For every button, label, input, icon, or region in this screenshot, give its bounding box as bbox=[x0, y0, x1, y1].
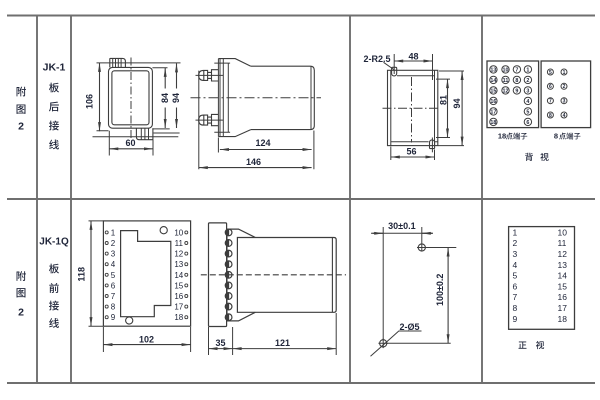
svg-text:124: 124 bbox=[255, 138, 270, 148]
svg-text:15: 15 bbox=[558, 281, 568, 291]
svg-text:7: 7 bbox=[513, 292, 518, 302]
svg-text:5: 5 bbox=[549, 70, 552, 76]
svg-text:9: 9 bbox=[515, 88, 518, 94]
svg-text:10: 10 bbox=[174, 228, 183, 237]
svg-text:10: 10 bbox=[558, 227, 568, 237]
svg-text:2: 2 bbox=[513, 238, 518, 248]
svg-text:1: 1 bbox=[563, 70, 566, 76]
svg-text:4: 4 bbox=[563, 113, 566, 119]
svg-text:2: 2 bbox=[18, 307, 24, 319]
svg-text:15: 15 bbox=[174, 281, 183, 290]
svg-text:5: 5 bbox=[526, 109, 529, 115]
svg-text:16: 16 bbox=[558, 292, 568, 302]
svg-text:18: 18 bbox=[558, 314, 568, 324]
svg-text:56: 56 bbox=[406, 147, 416, 157]
svg-text:10: 10 bbox=[503, 67, 509, 73]
svg-text:2: 2 bbox=[111, 239, 116, 248]
svg-text:13: 13 bbox=[558, 260, 568, 270]
svg-text:35: 35 bbox=[215, 338, 225, 348]
svg-text:9: 9 bbox=[111, 313, 116, 322]
svg-text:6: 6 bbox=[111, 281, 116, 290]
svg-text:2: 2 bbox=[563, 84, 566, 90]
svg-text:8: 8 bbox=[554, 132, 558, 141]
svg-text:121: 121 bbox=[275, 338, 290, 348]
svg-text:JK-1: JK-1 bbox=[43, 62, 66, 74]
svg-text:1: 1 bbox=[111, 228, 116, 237]
svg-text:12: 12 bbox=[174, 250, 183, 259]
svg-text:94: 94 bbox=[452, 98, 462, 108]
svg-text:100±0.2: 100±0.2 bbox=[435, 274, 445, 306]
svg-text:84: 84 bbox=[160, 93, 170, 103]
svg-text:8: 8 bbox=[549, 113, 552, 119]
svg-text:2: 2 bbox=[526, 78, 529, 84]
svg-text:17: 17 bbox=[490, 109, 496, 115]
svg-text:30±0.1: 30±0.1 bbox=[388, 221, 415, 231]
svg-text:7: 7 bbox=[549, 99, 552, 105]
svg-text:146: 146 bbox=[246, 157, 261, 167]
svg-text:48: 48 bbox=[408, 51, 418, 61]
svg-text:JK-1Q: JK-1Q bbox=[39, 237, 69, 248]
svg-text:14: 14 bbox=[490, 78, 496, 84]
svg-text:11: 11 bbox=[558, 238, 567, 248]
svg-text:14: 14 bbox=[174, 271, 183, 280]
svg-text:60: 60 bbox=[125, 138, 135, 148]
svg-text:11: 11 bbox=[175, 239, 184, 248]
svg-text:8: 8 bbox=[515, 78, 518, 84]
svg-text:1: 1 bbox=[526, 67, 529, 73]
svg-text:3: 3 bbox=[111, 250, 116, 259]
svg-text:18: 18 bbox=[490, 120, 496, 126]
svg-text:6: 6 bbox=[513, 281, 518, 291]
svg-text:18: 18 bbox=[498, 132, 506, 141]
svg-text:106: 106 bbox=[85, 94, 95, 109]
svg-text:16: 16 bbox=[490, 99, 496, 105]
svg-text:5: 5 bbox=[513, 271, 518, 281]
svg-text:8: 8 bbox=[111, 303, 116, 312]
svg-text:5: 5 bbox=[111, 271, 116, 280]
svg-text:3: 3 bbox=[526, 88, 529, 94]
svg-text:13: 13 bbox=[174, 260, 183, 269]
svg-text:118: 118 bbox=[76, 267, 86, 282]
svg-text:16: 16 bbox=[174, 292, 183, 301]
svg-text:18: 18 bbox=[174, 313, 183, 322]
svg-text:11: 11 bbox=[503, 78, 509, 84]
svg-text:8: 8 bbox=[513, 303, 518, 313]
svg-text:4: 4 bbox=[111, 260, 116, 269]
svg-text:1: 1 bbox=[513, 227, 518, 237]
svg-text:3: 3 bbox=[513, 249, 518, 259]
svg-text:17: 17 bbox=[558, 303, 568, 313]
svg-text:4: 4 bbox=[526, 99, 529, 105]
svg-text:12: 12 bbox=[503, 88, 509, 94]
svg-text:3: 3 bbox=[563, 99, 566, 105]
svg-text:14: 14 bbox=[558, 271, 568, 281]
svg-text:15: 15 bbox=[490, 88, 496, 94]
svg-text:7: 7 bbox=[111, 292, 116, 301]
svg-text:12: 12 bbox=[558, 249, 568, 259]
svg-text:2: 2 bbox=[18, 121, 24, 133]
svg-text:81: 81 bbox=[438, 95, 448, 105]
svg-text:7: 7 bbox=[515, 67, 518, 73]
svg-text:17: 17 bbox=[174, 303, 183, 312]
svg-text:102: 102 bbox=[139, 335, 154, 345]
svg-text:9: 9 bbox=[513, 314, 518, 324]
svg-text:94: 94 bbox=[171, 93, 181, 103]
svg-text:13: 13 bbox=[490, 67, 496, 73]
svg-text:6: 6 bbox=[526, 120, 529, 126]
svg-text:4: 4 bbox=[513, 260, 518, 270]
svg-text:2-R2.5: 2-R2.5 bbox=[363, 54, 390, 64]
svg-text:6: 6 bbox=[549, 84, 552, 90]
svg-text:2-Ø5: 2-Ø5 bbox=[399, 322, 419, 332]
